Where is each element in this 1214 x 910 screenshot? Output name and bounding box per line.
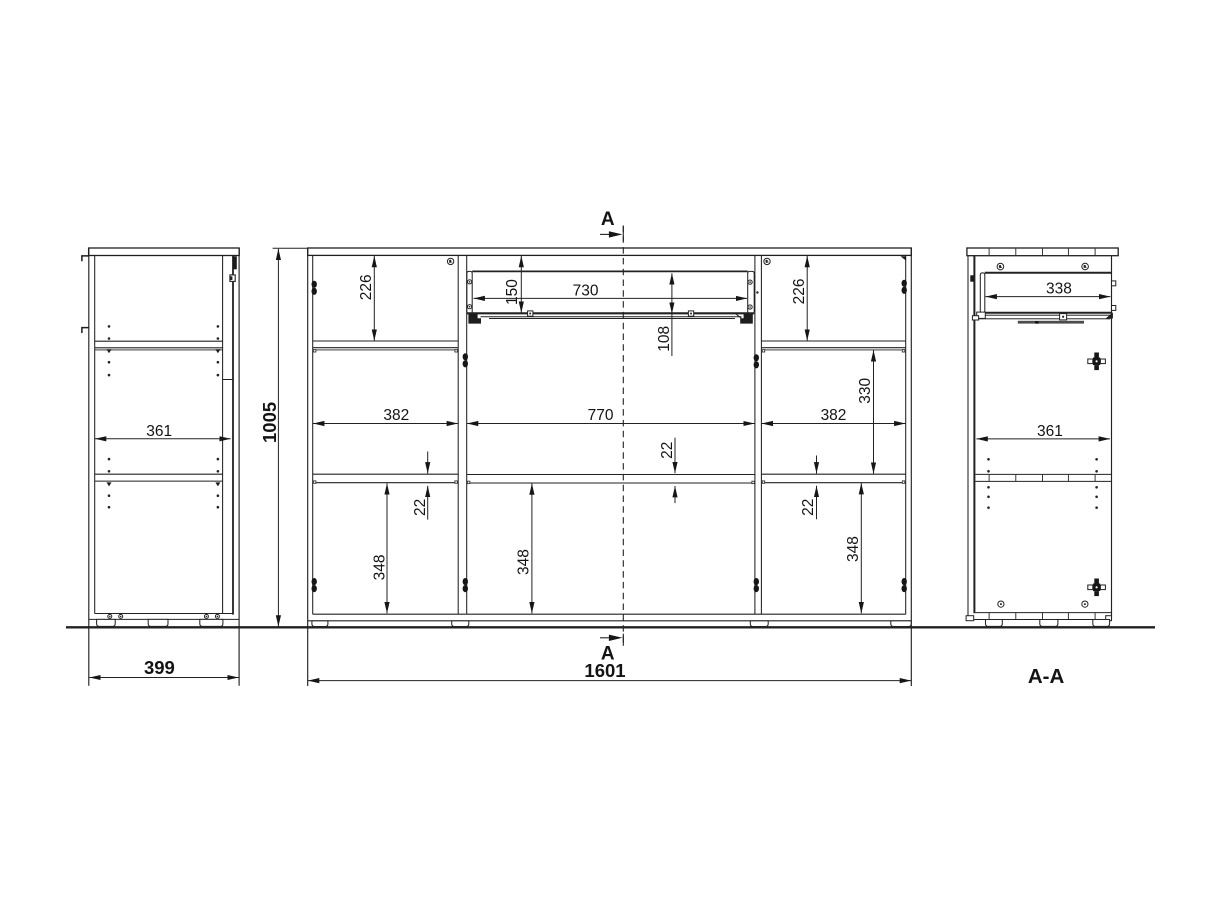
svg-text:382: 382 (821, 407, 847, 424)
svg-text:1005: 1005 (259, 402, 280, 443)
svg-text:361: 361 (1037, 423, 1063, 440)
svg-text:330: 330 (857, 377, 874, 403)
svg-text:22: 22 (412, 499, 429, 516)
svg-text:399: 399 (144, 657, 175, 678)
svg-text:348: 348 (845, 536, 862, 562)
svg-text:A-A: A-A (1028, 665, 1065, 688)
svg-text:348: 348 (372, 554, 389, 580)
svg-text:382: 382 (383, 407, 409, 424)
svg-text:730: 730 (573, 282, 599, 299)
svg-text:226: 226 (358, 274, 375, 300)
svg-text:22: 22 (659, 442, 676, 459)
svg-text:338: 338 (1046, 281, 1072, 298)
svg-text:A: A (601, 209, 615, 230)
svg-text:22: 22 (800, 499, 817, 516)
svg-text:108: 108 (656, 326, 673, 352)
svg-text:361: 361 (146, 423, 172, 440)
svg-text:348: 348 (515, 549, 532, 575)
svg-text:770: 770 (588, 407, 614, 424)
svg-text:226: 226 (791, 278, 808, 304)
svg-text:A: A (601, 644, 615, 665)
svg-text:150: 150 (504, 279, 521, 305)
